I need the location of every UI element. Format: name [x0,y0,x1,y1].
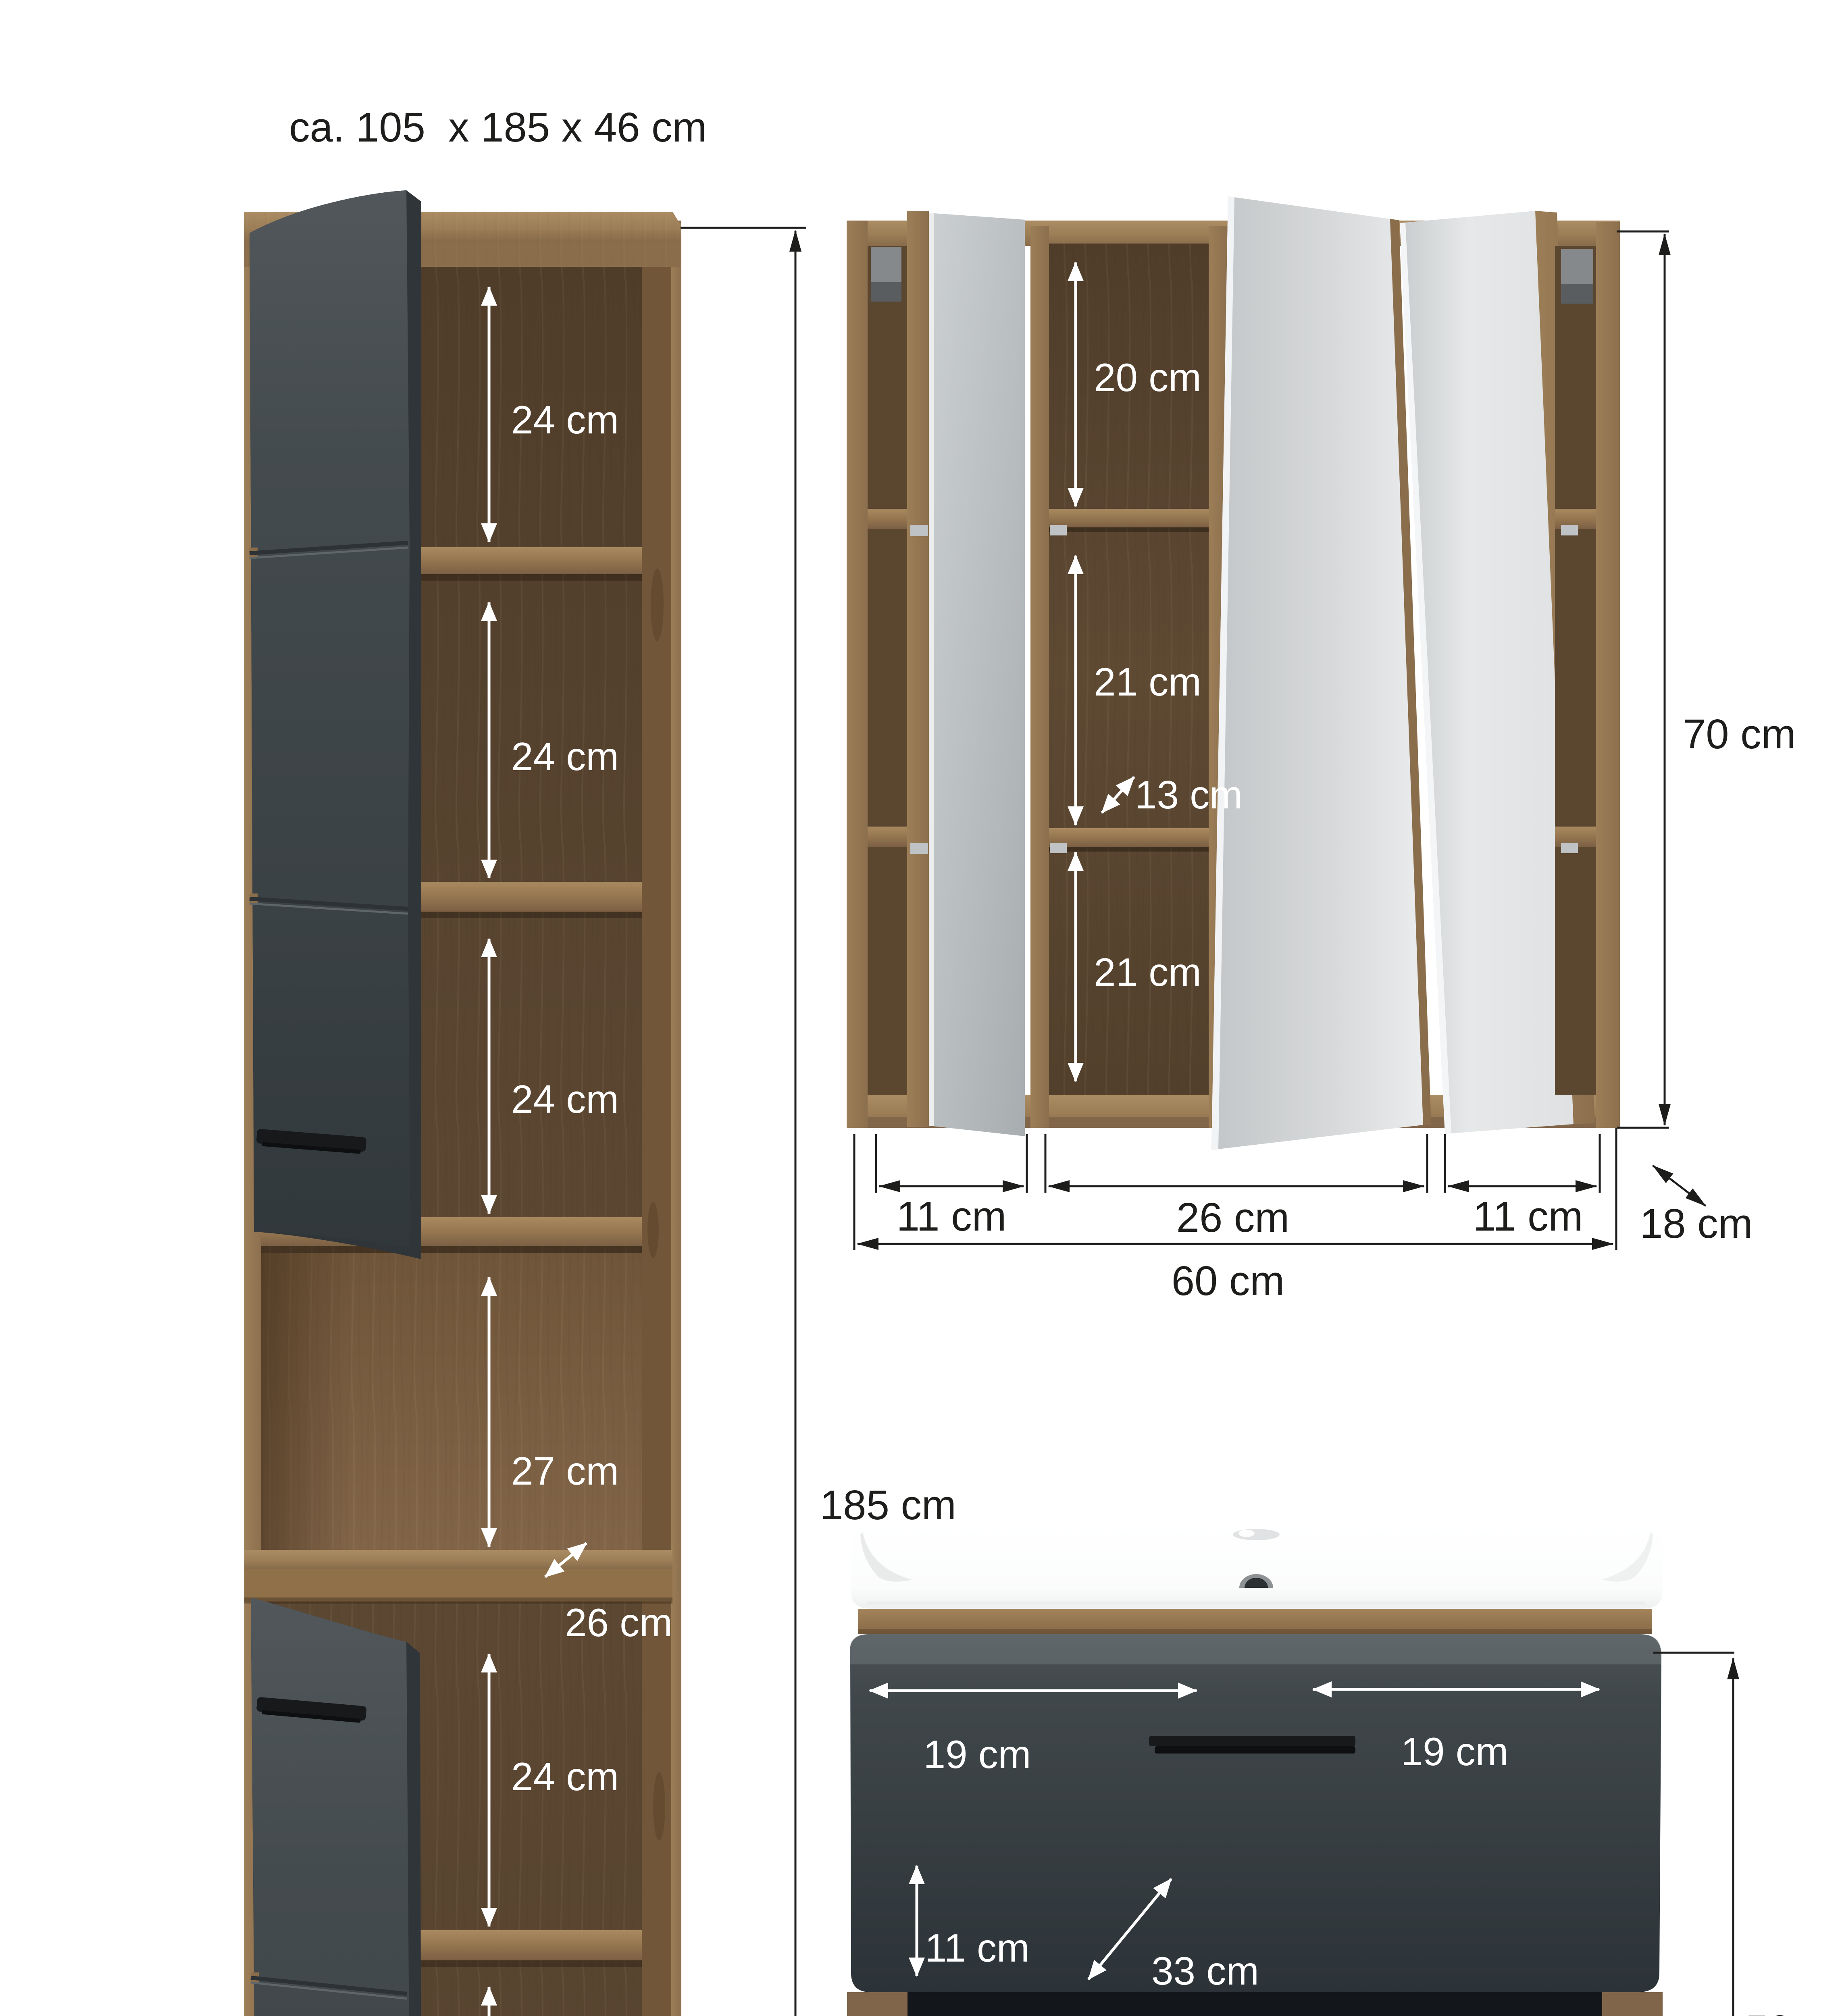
svg-text:33 cm: 33 cm [1151,1949,1259,1993]
svg-text:53 cm: 53 cm [1745,2007,1840,2016]
svg-text:26 cm: 26 cm [565,1600,672,1645]
svg-text:13 cm: 13 cm [1135,773,1243,817]
svg-text:24 cm: 24 cm [511,398,619,442]
svg-text:27 cm: 27 cm [511,1449,619,1493]
svg-text:24 cm: 24 cm [511,1754,619,1799]
svg-text:24 cm: 24 cm [511,1077,619,1121]
svg-text:11 cm: 11 cm [897,1193,1007,1239]
svg-text:18 cm: 18 cm [1640,1200,1753,1247]
svg-text:19 cm: 19 cm [1401,1729,1509,1774]
svg-text:11 cm: 11 cm [925,1926,1030,1970]
svg-text:20 cm: 20 cm [1094,355,1201,400]
svg-text:ca. 105 x 185 x 46 cm: ca. 105 x 185 x 46 cm [289,104,707,150]
svg-text:60 cm: 60 cm [1172,1258,1284,1304]
svg-text:185 cm: 185 cm [820,1482,956,1528]
svg-text:70 cm: 70 cm [1683,711,1796,757]
svg-text:19 cm: 19 cm [924,1732,1031,1776]
svg-text:21 cm: 21 cm [1094,950,1201,994]
svg-text:21 cm: 21 cm [1094,660,1201,704]
svg-text:26 cm: 26 cm [1176,1194,1289,1241]
svg-text:24 cm: 24 cm [511,734,619,779]
svg-text:11 cm: 11 cm [1473,1193,1583,1239]
